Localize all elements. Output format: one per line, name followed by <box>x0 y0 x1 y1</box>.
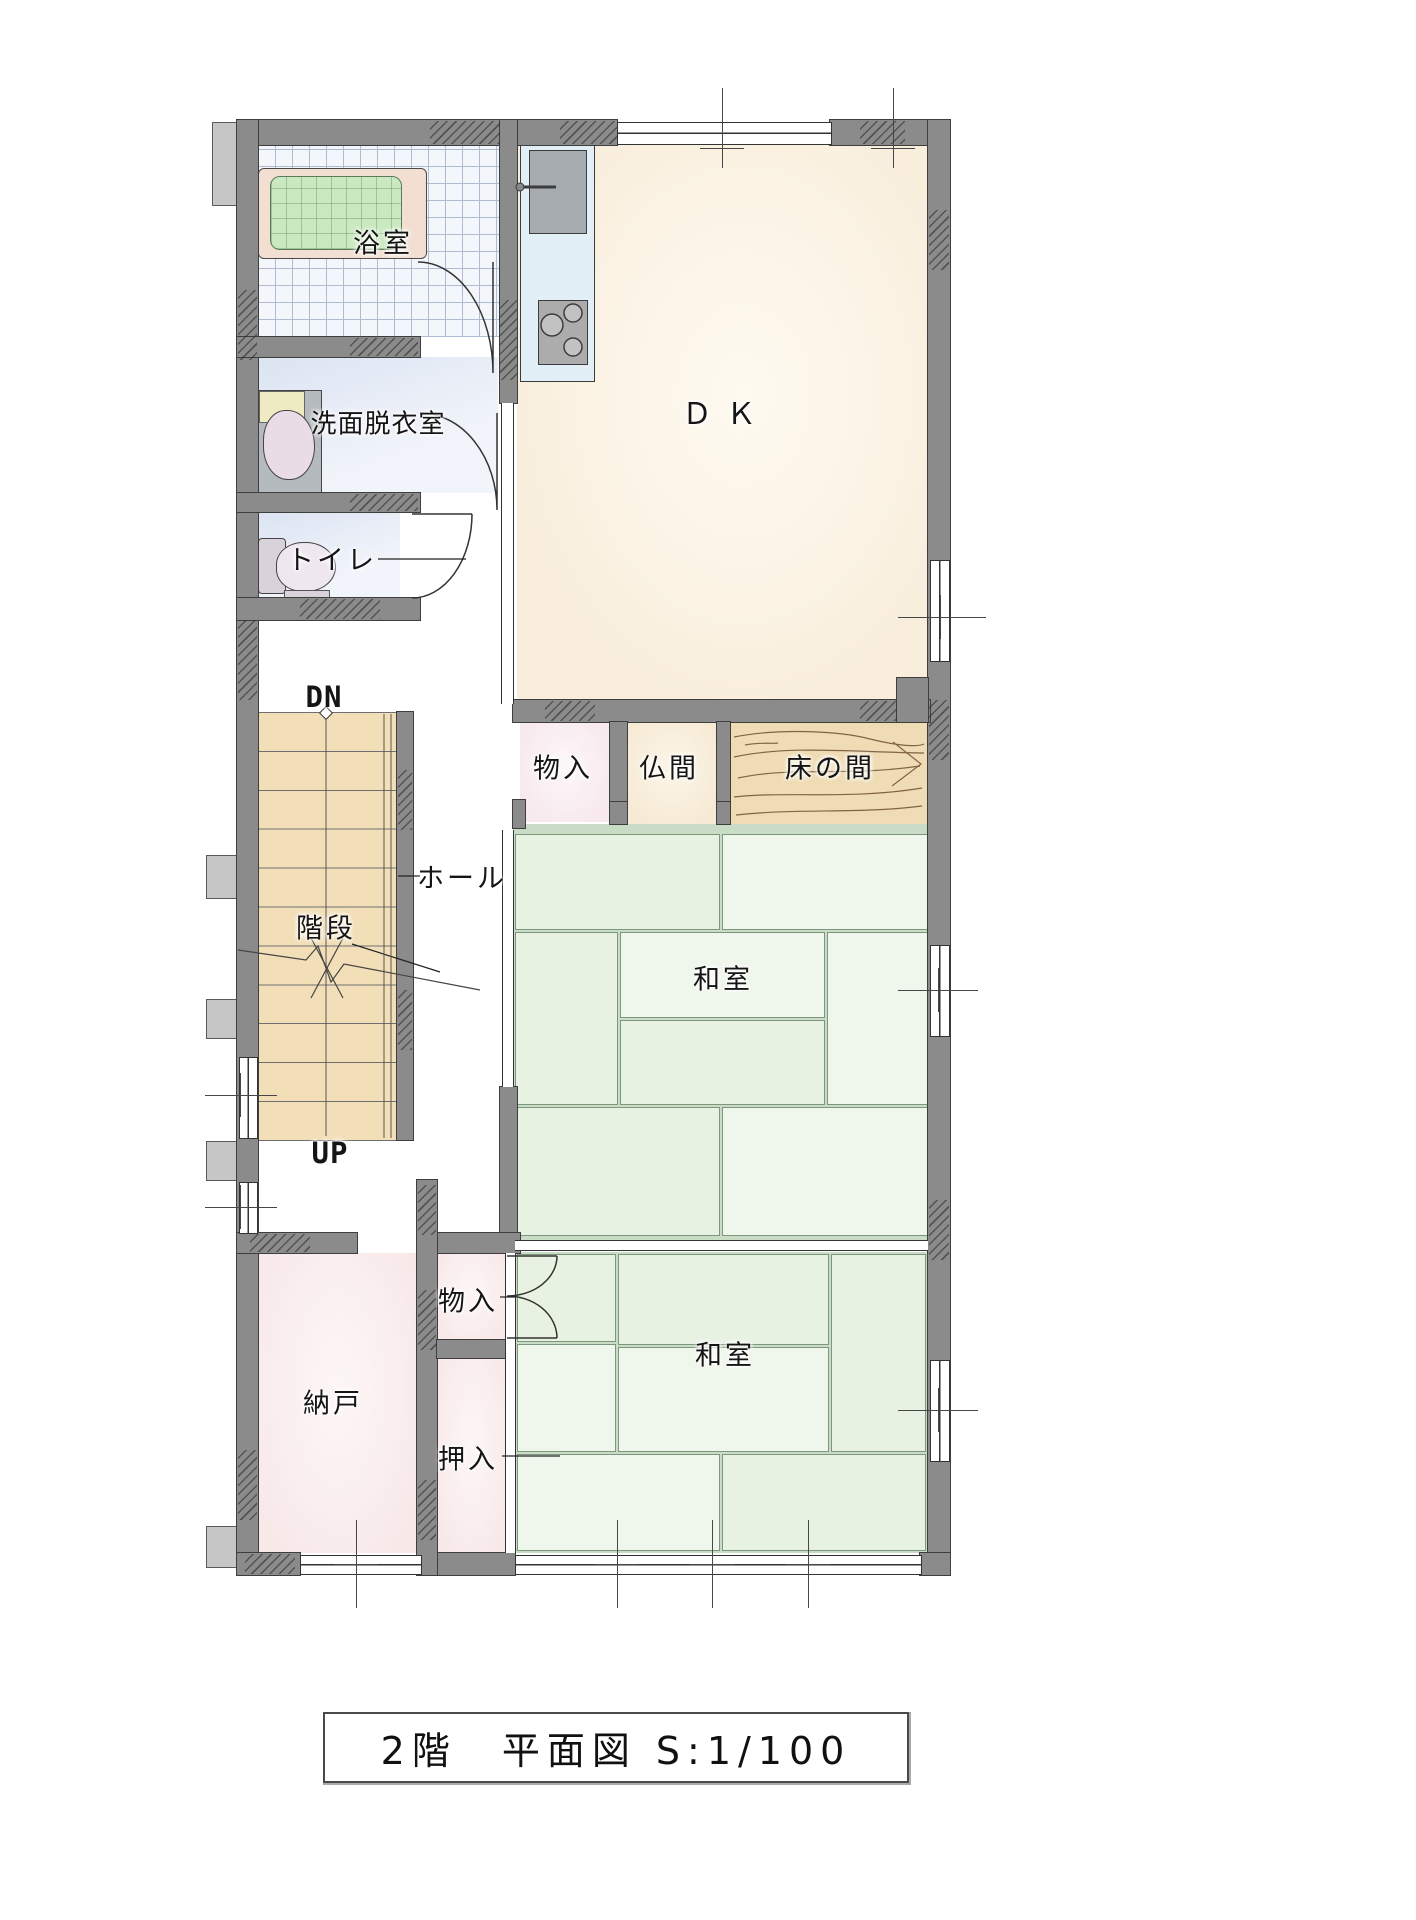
room-label-bath: 浴室 <box>353 222 413 261</box>
room-label-washroom: 洗面脱衣室 <box>310 404 445 441</box>
grid-line-marker <box>334 1564 378 1565</box>
window <box>239 1057 258 1139</box>
wall-hatch <box>238 1450 257 1520</box>
tatami-mat <box>515 1107 720 1236</box>
wall-pillar <box>207 1000 238 1038</box>
grid-line-marker <box>871 148 915 149</box>
grid-line-marker <box>700 148 744 149</box>
window <box>617 122 832 145</box>
room-label-stairs: 階段 <box>296 907 356 946</box>
grid-line-marker <box>595 1564 639 1565</box>
wall-hatch <box>500 300 517 380</box>
washitsu-upper-room <box>513 824 928 1240</box>
grid-line-marker <box>940 595 941 639</box>
grid-line-marker <box>205 1095 277 1096</box>
plan-title-box: 2階 平面図 S:1/100 <box>323 1712 909 1783</box>
grid-line-marker <box>240 1185 241 1229</box>
wall-hatch <box>430 121 500 144</box>
wall-hatch <box>929 210 949 270</box>
window <box>930 1360 950 1462</box>
wall-hatch <box>398 770 412 830</box>
tatami-mat <box>722 1454 926 1551</box>
wall-hatch <box>860 701 897 721</box>
tatami-mat <box>722 834 938 930</box>
plan-title: 2階 平面図 S:1/100 <box>381 1720 852 1775</box>
grid-line-marker <box>893 88 894 168</box>
tatami-mat <box>515 932 618 1105</box>
wall-pillar <box>207 1142 238 1180</box>
tatami-mat <box>517 1454 720 1551</box>
tatami-mat <box>618 1254 829 1345</box>
washitsu-lower-room <box>515 1252 928 1553</box>
wall-segment <box>610 802 627 824</box>
window <box>239 1182 258 1234</box>
fusuma-partition <box>515 1240 928 1251</box>
stove <box>538 300 588 365</box>
grid-line-marker <box>938 968 939 1012</box>
wall-segment <box>717 802 730 824</box>
vanity-basin <box>263 410 315 480</box>
wall-hatch <box>860 121 905 144</box>
window <box>300 1555 422 1575</box>
grid-line-marker <box>786 1564 830 1565</box>
room-label-dk: ＤＫ <box>682 389 770 433</box>
sliding-partition <box>501 403 514 704</box>
wall-hatch <box>238 290 257 360</box>
room-label-oshiire: 押入 <box>438 1438 498 1477</box>
room-label-storage-small: 物入 <box>438 1280 498 1319</box>
grid-line-marker <box>898 617 986 618</box>
wall-hatch <box>350 494 418 511</box>
wall-hatch <box>545 701 595 721</box>
wall-hatch <box>250 1234 310 1252</box>
room-label-washitsu-upper: 和室 <box>693 958 753 997</box>
window <box>930 945 950 1037</box>
wall-segment <box>437 1340 505 1358</box>
toilet-door-arc <box>412 514 472 598</box>
floor-plan-page: 浴室 洗面脱衣室 トイレ ＤＫ 物入 仏間 床の間 ホール 階段 DN UP 和… <box>0 0 1416 1920</box>
tatami-mat <box>722 1107 938 1236</box>
tatami-mat <box>517 1344 616 1452</box>
wall-hatch <box>238 620 257 700</box>
wall-segment <box>920 1553 950 1575</box>
wall-hatch <box>929 700 949 760</box>
wall-hatch <box>418 1185 436 1235</box>
wall-hatch <box>560 121 617 144</box>
stairs-down-label: DN <box>306 680 343 714</box>
wall-pillar <box>207 1527 238 1567</box>
wall-hatch <box>418 1290 436 1350</box>
wall-hatch <box>418 1480 436 1540</box>
tatami-mat <box>517 1254 616 1342</box>
kitchen-sink <box>529 150 587 234</box>
grid-line-marker <box>690 1564 734 1565</box>
tatami-mat <box>831 1254 926 1452</box>
tatami-mat <box>620 1020 825 1105</box>
tatami-mat <box>827 932 938 1105</box>
wall-segment <box>513 800 525 828</box>
room-label-nando: 納戸 <box>303 1382 363 1421</box>
grid-line-marker <box>722 88 723 168</box>
wall-hatch <box>929 1200 949 1260</box>
wall-pillar <box>207 856 238 898</box>
stairs-up-label: UP <box>312 1136 349 1170</box>
grid-line-marker <box>240 1073 241 1117</box>
wall-hatch <box>398 990 412 1050</box>
room-label-hall: ホール <box>417 857 507 896</box>
grid-line-marker <box>938 1388 939 1432</box>
wall-segment <box>897 678 928 722</box>
room-label-toilet: トイレ <box>287 539 377 578</box>
tatami-mat <box>515 834 720 930</box>
wall-pillar <box>213 123 239 205</box>
window <box>515 1555 922 1575</box>
room-label-tokonoma: 床の間 <box>785 747 875 786</box>
sliding-partition <box>505 1253 516 1553</box>
wall-hatch <box>245 1554 295 1574</box>
wall-hatch <box>350 338 418 356</box>
wall-segment <box>500 1087 517 1240</box>
wall-hatch <box>300 599 380 619</box>
room-label-washitsu-lower: 和室 <box>695 1334 755 1373</box>
room-label-butsuma: 仏間 <box>639 747 699 786</box>
wall-segment <box>928 120 950 1575</box>
room-label-storage-mid: 物入 <box>533 747 593 786</box>
grid-line-marker <box>205 1207 277 1208</box>
